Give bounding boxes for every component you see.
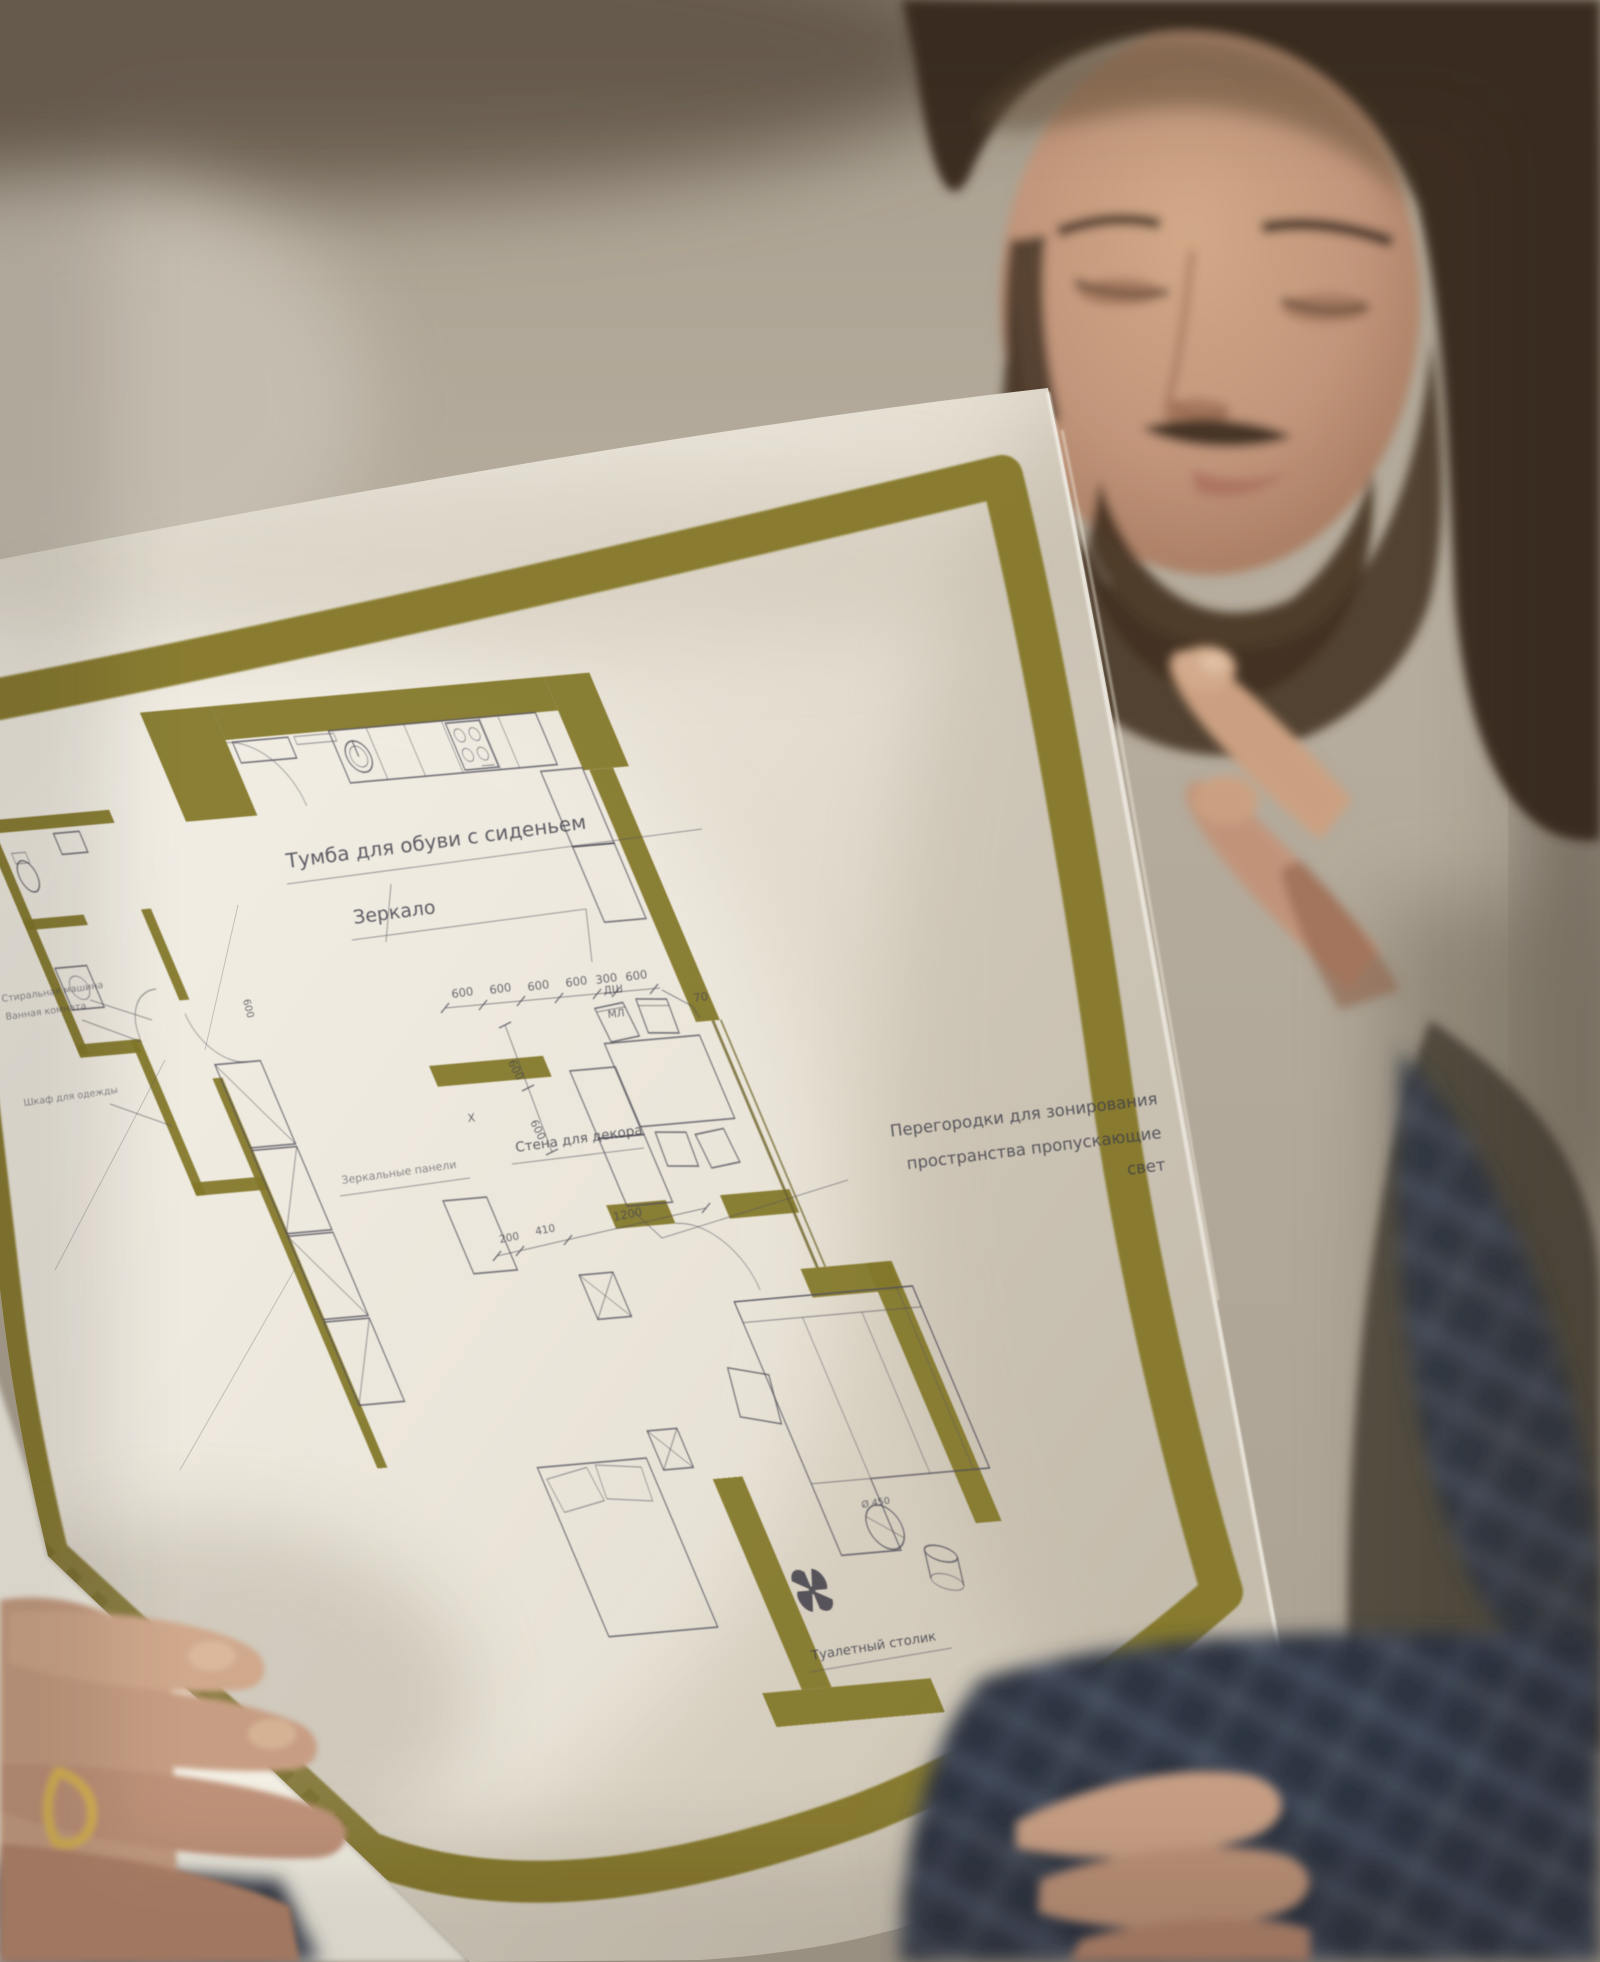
index-nail (188, 1641, 236, 1671)
middle-fingertip (1194, 776, 1258, 824)
photo-scene: 600 600 600 600 300 600 70 600 600 600 (0, 0, 1600, 1962)
eye-right-shadow (1282, 293, 1370, 323)
eye-left-shadow (1078, 278, 1162, 306)
middle-nail (248, 1719, 296, 1749)
index-nail (1200, 652, 1228, 672)
dim-wall-offset: 70 (692, 989, 708, 1005)
label-oven: ДШ (603, 983, 624, 997)
label-microwave: МЛ (607, 1007, 625, 1021)
